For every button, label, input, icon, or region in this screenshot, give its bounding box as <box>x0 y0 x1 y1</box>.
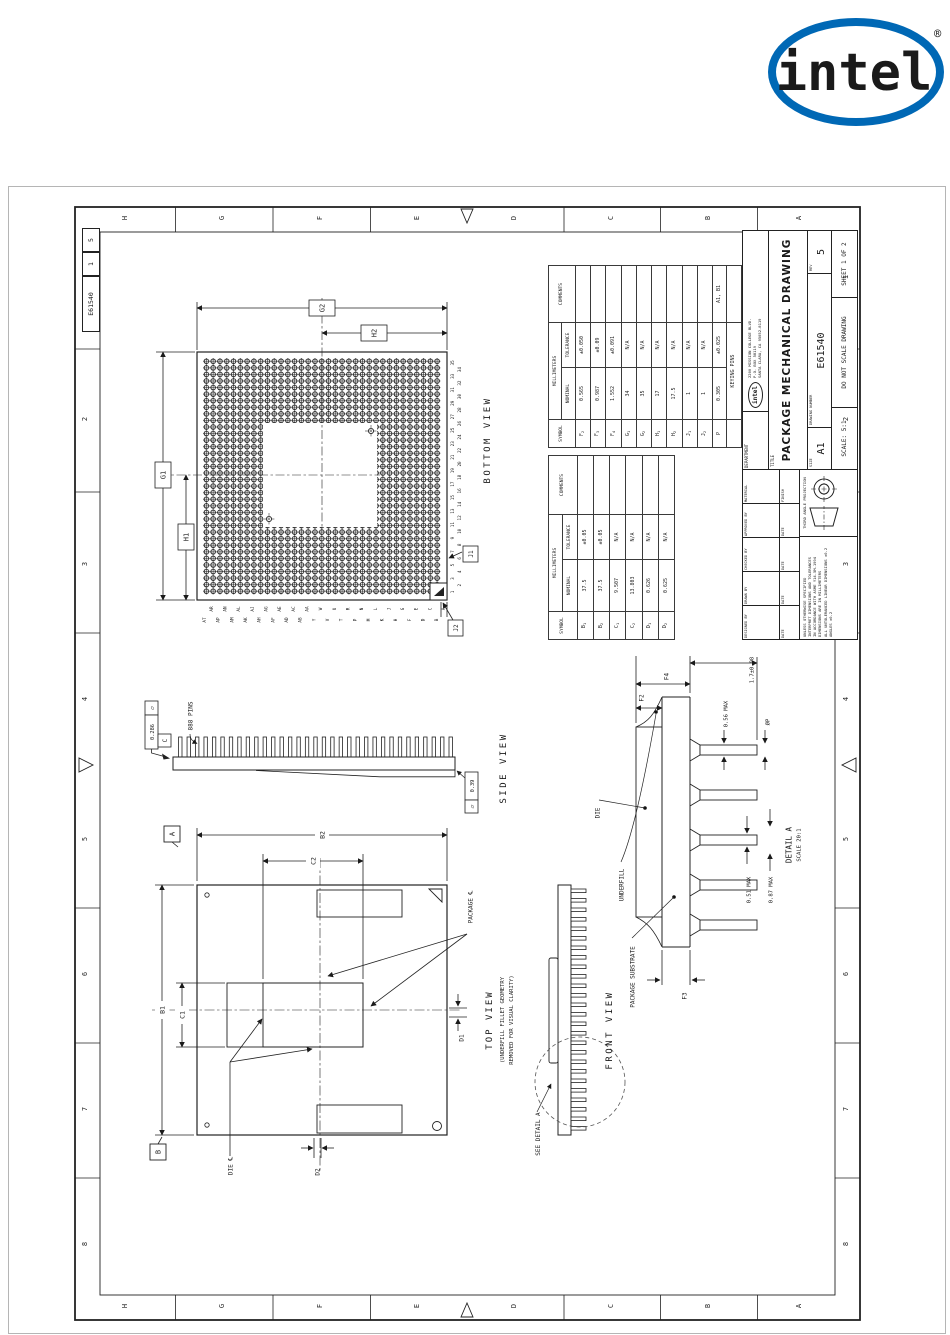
side-pin <box>381 737 384 757</box>
table-cell: ±0.09 <box>591 323 606 368</box>
pin-row-letter: J <box>386 608 392 611</box>
table-cell: N/A <box>652 323 667 368</box>
zone-number-left: 7 <box>81 1107 89 1111</box>
drawing-art: G2 H2 G1 H1 J1 J2 1234567891011121314151… <box>0 0 950 1335</box>
pin-column-number: 14 <box>457 501 463 507</box>
dim-b1: B1 <box>159 1006 167 1014</box>
side-pin <box>365 737 368 757</box>
side-pin <box>322 737 325 757</box>
pin-column-number: 9 <box>450 536 456 539</box>
pin-column-number: 7 <box>450 550 456 553</box>
table-cell: N/A <box>658 515 674 560</box>
table-symbol-cell: D1 <box>642 612 658 640</box>
die-label: DIE <box>595 807 602 818</box>
table-cell: ±0.025 <box>713 323 727 368</box>
pin-row-letter: AH <box>257 617 263 623</box>
drawing-number-label: DRAWING NUMBER <box>809 395 813 425</box>
side-pin <box>179 737 182 757</box>
pins-count-label: 888 PINS <box>188 701 195 730</box>
bottom-view-title: BOTTOM VIEW <box>483 396 493 483</box>
department-label: DEPARTMENT <box>743 411 768 469</box>
rev-label: REV <box>809 265 813 272</box>
detail-a-title: DETAIL A <box>785 826 794 863</box>
pin-column-number: 1 <box>450 590 456 593</box>
table-cell: N/A <box>642 515 658 560</box>
front-pin <box>571 956 586 960</box>
zone-number-left: 2 <box>81 417 89 421</box>
pin-row-letter: W <box>318 607 324 610</box>
table-cell: ±0.091 <box>606 323 621 368</box>
table-header: MILLIMETERS <box>549 515 563 612</box>
pin-row-letter: AK <box>243 617 249 623</box>
detail-pin-neck <box>690 914 700 936</box>
dim-b2: B2 <box>319 831 327 839</box>
pin-column-number: 11 <box>450 522 456 528</box>
pin-row-letter: AT <box>202 617 208 623</box>
dim-c2: C2 <box>310 857 318 865</box>
front-pin <box>571 1089 586 1093</box>
table-cell: A1, B1 <box>713 266 727 323</box>
flatness-icon: ▱ <box>468 804 476 808</box>
top-view-title: TOP VIEW <box>485 990 495 1049</box>
date-label: DATE <box>780 606 799 639</box>
table-symbol-cell: J2 <box>697 420 712 448</box>
front-pin <box>571 1051 586 1055</box>
front-pin <box>571 937 586 941</box>
table-header: SYMBOL <box>549 420 576 448</box>
pin-column-number: 23 <box>450 441 456 447</box>
pin-column-number: 29 <box>450 400 456 406</box>
dim-j1: J1 <box>468 550 475 558</box>
front-die <box>549 958 558 1063</box>
drawing-page: intel ® <box>0 0 950 1335</box>
detail-pin-shaft <box>700 745 757 755</box>
pin-column-number: 3 <box>450 577 456 580</box>
table-cell <box>577 456 593 515</box>
zone-letter-top: H <box>121 216 129 220</box>
front-pin <box>571 927 586 931</box>
detail-die <box>636 727 662 917</box>
title-block: DESIGNED BYDATE DRAWN BYDATE CHECKED BYD… <box>742 230 858 640</box>
side-pin <box>415 737 418 757</box>
side-pin <box>297 737 300 757</box>
pin-column-number: 31 <box>450 387 456 393</box>
side-pin <box>441 737 444 757</box>
side-pin <box>339 737 342 757</box>
pin-row-letter: AE <box>277 606 283 612</box>
side-fcf2: 0.39 ▱ <box>457 771 478 813</box>
table-cell: 0.626 <box>642 560 658 612</box>
table-cell <box>621 266 636 323</box>
zone-number-right: 7 <box>842 1107 850 1111</box>
datum-b: B <box>155 1150 163 1154</box>
table-row: H117N/A <box>652 266 667 448</box>
table-symbol-cell: C2 <box>626 612 642 640</box>
dimension-table-1: SYMBOLMILLIMETERSCOMMENTSNOMINALTOLERANC… <box>548 265 742 448</box>
dim-d2: D2 <box>315 1168 322 1176</box>
table-cell <box>652 266 667 323</box>
table-cell: 35 <box>636 368 651 420</box>
front-pin <box>571 889 586 893</box>
side-pin <box>187 737 190 757</box>
pin-row-letter: AC <box>291 606 297 612</box>
intel-mini-logo: intel <box>748 382 763 408</box>
zone-number-left: 8 <box>81 1242 89 1246</box>
table-cell: 0.565 <box>575 368 590 420</box>
pin-column-number: 5 <box>450 563 456 566</box>
pin-column-number: 15 <box>450 495 456 501</box>
underfill-fillet <box>636 697 662 947</box>
table-row: J21N/A <box>697 266 712 448</box>
table-row: G134N/A <box>621 266 636 448</box>
pin-row-letter: G <box>400 607 406 610</box>
pin-row-letter: AA <box>304 606 310 612</box>
pin-column-number: 26 <box>457 421 463 427</box>
pin-column-number: 34 <box>457 367 463 373</box>
table-row: G235N/A <box>636 266 651 448</box>
side-view-pins <box>179 737 453 757</box>
pin-row-letter: H <box>393 618 399 621</box>
side-pin <box>348 737 351 757</box>
side-pin <box>331 737 334 757</box>
dim-h1: H1 <box>183 533 191 541</box>
table-header: TOLERANCE <box>563 515 577 560</box>
detail-a-labels: DIE UNDERFILL PACKAGE SUBSTRATE 1.7±0.08… <box>595 657 803 1008</box>
dim-g2: G2 <box>319 304 327 312</box>
front-pin <box>571 899 586 903</box>
zone-letter-bottom: E <box>413 1304 421 1308</box>
pin-column-number: 20 <box>457 461 463 467</box>
pin-column-number: 10 <box>457 528 463 534</box>
pin-column-number: 8 <box>457 543 463 546</box>
table-header: SYMBOL <box>549 612 578 640</box>
table-symbol-cell: P <box>713 420 727 448</box>
microfilm-strip: E61540 1 5 <box>82 228 100 332</box>
table-cell <box>697 266 712 323</box>
date-label: DATE <box>780 572 799 605</box>
detail-pin-shaft <box>700 835 757 845</box>
zone-number-left: 5 <box>81 837 89 841</box>
date-label: DATE <box>780 504 799 537</box>
front-pin <box>571 1022 586 1026</box>
side-pin <box>288 737 291 757</box>
side-view-title: SIDE VIEW <box>499 732 509 803</box>
front-view: SEE DETAIL A FRONT VIEW <box>535 885 625 1156</box>
table-symbol-cell: D2 <box>658 612 674 640</box>
table-row: B137.5±0.05 <box>577 456 593 640</box>
dimension-table: SYMBOLMILLIMETERSCOMMENTSNOMINALTOLERANC… <box>548 265 742 448</box>
table-cell: KEYING PINS <box>727 323 742 420</box>
checked-by-label: CHECKED BY <box>743 538 780 571</box>
do-not-scale-note: DO NOT SCALE DRAWING <box>841 298 848 407</box>
detail-pin-neck <box>690 784 700 806</box>
table-cell <box>626 456 642 515</box>
side-pin <box>229 737 232 757</box>
pin-row-letter: K <box>380 618 386 621</box>
dim-pin-length: 1.7±0.08 <box>750 657 756 684</box>
detail-pin-shaft <box>700 920 757 930</box>
front-pin <box>571 1098 586 1102</box>
front-view-pins <box>571 889 586 1130</box>
finish-label: FINISH <box>780 470 799 503</box>
material-label: MATERIAL <box>743 470 780 503</box>
zone-number-left: 3 <box>81 562 89 566</box>
flatness-icon: ▱ <box>148 706 156 710</box>
front-pin <box>571 1032 586 1036</box>
side-pin <box>246 737 249 757</box>
zone-letter-top: B <box>704 216 712 220</box>
table-cell: ±0.050 <box>575 323 590 368</box>
table-row: D10.626N/A <box>642 456 658 640</box>
pin-row-letter: AB <box>298 617 304 623</box>
table-symbol-cell <box>727 420 742 448</box>
zone-number-right: 8 <box>842 1242 850 1246</box>
table-cell <box>667 266 682 323</box>
front-pin <box>571 1117 586 1121</box>
table-cell: 0.987 <box>591 368 606 420</box>
pin-column-number: 16 <box>457 488 463 494</box>
zone-letter-bottom: B <box>704 1304 712 1308</box>
side-view: ▱ 0.286 C 888 PINS 0.39 ▱ SIDE VIEW <box>145 701 509 813</box>
pin-column-number: 12 <box>457 515 463 521</box>
table-cell <box>593 456 609 515</box>
side-fcf1: ▱ 0.286 C <box>145 701 171 760</box>
table-row: C213.803N/A <box>626 456 642 640</box>
table-cell: 37.5 <box>577 560 593 612</box>
pin-row-letter: AN <box>222 606 228 612</box>
table-symbol-cell: G2 <box>636 420 651 448</box>
side-pin <box>314 737 317 757</box>
date-label: DATE <box>780 538 799 571</box>
front-pin <box>571 1060 586 1064</box>
substrate-label: PACKAGE SUBSTRATE <box>630 946 637 1008</box>
zone-number-right: 3 <box>842 562 850 566</box>
table-symbol-cell: F3 <box>591 420 606 448</box>
front-pin <box>571 1108 586 1112</box>
drawing-number: E61540 <box>816 274 827 427</box>
designed-by-label: DESIGNED BY <box>743 606 780 639</box>
front-pin <box>571 1041 586 1045</box>
side-pin <box>255 737 258 757</box>
strip-dwg-no: E61540 <box>82 276 100 332</box>
fcf1-value: 0.286 <box>150 724 156 740</box>
pin-column-number: 17 <box>450 481 456 487</box>
table-cell <box>727 266 742 323</box>
table-symbol-cell: F2 <box>575 420 590 448</box>
table-cell: 37.5 <box>593 560 609 612</box>
table-symbol-cell: J1 <box>682 420 697 448</box>
table-header: COMMENTS <box>549 456 578 515</box>
size-label: SIZE <box>809 458 813 467</box>
side-pin <box>280 737 283 757</box>
front-pin <box>571 984 586 988</box>
third-angle-projection-icon <box>807 474 841 532</box>
front-pin <box>571 975 586 979</box>
table-cell: N/A <box>621 323 636 368</box>
table-cell: N/A <box>610 515 626 560</box>
pin-column-number: 32 <box>457 380 463 386</box>
pin-row-letter: T <box>339 618 345 621</box>
side-pin <box>398 737 401 757</box>
dimension-table-2: SYMBOLMILLIMETERSCOMMENTSNOMINALTOLERANC… <box>548 455 675 640</box>
dim-h2: H2 <box>371 329 379 337</box>
zone-number-right: 4 <box>842 697 850 701</box>
table-cell: 13.803 <box>626 560 642 612</box>
dim-g1: G1 <box>160 471 168 479</box>
table-cell: 34 <box>621 368 636 420</box>
front-pin <box>571 918 586 922</box>
front-view-title: FRONT VIEW <box>605 990 615 1069</box>
table-symbol-cell: C1 <box>610 612 626 640</box>
zone-number-right: 5 <box>842 837 850 841</box>
detail-pin-neck <box>690 829 700 851</box>
address-line3: SANTA CLARA, CA 95052-8119 <box>757 319 762 378</box>
drawing-title: PACKAGE MECHANICAL DRAWING <box>781 231 793 469</box>
pin-column-number: 35 <box>450 360 456 366</box>
pin-column-number: 27 <box>450 414 456 420</box>
bottom-view: G2 H2 G1 H1 J1 J2 1234567891011121314151… <box>155 298 493 636</box>
dim-d1: D1 <box>459 1034 466 1042</box>
pin-row-letter: AP <box>216 617 222 623</box>
table-cell <box>591 266 606 323</box>
pin-row-letter: AF <box>270 617 276 623</box>
table-cell: 1 <box>697 368 712 420</box>
table-header: NOMINAL <box>562 368 575 420</box>
dim-pin-dia: ØP <box>765 718 772 725</box>
size-value: A1 <box>816 428 827 469</box>
table-cell: 1 <box>682 368 697 420</box>
front-pin <box>571 946 586 950</box>
front-pin <box>571 965 586 969</box>
zone-number-right: 1 <box>842 275 850 279</box>
zone-letter-top: E <box>413 216 421 220</box>
pin-row-letter: U <box>332 607 338 610</box>
side-pin <box>305 737 308 757</box>
table-row: F30.987±0.09 <box>591 266 606 448</box>
table-cell <box>682 266 697 323</box>
dim-c1: C1 <box>179 1011 187 1019</box>
pin-row-letter: B <box>434 618 440 621</box>
detail-leaders <box>599 714 674 938</box>
front-pin <box>571 1003 586 1007</box>
dim-f4: F4 <box>664 673 671 681</box>
side-pin <box>449 737 452 757</box>
pin-column-number: 28 <box>457 407 463 413</box>
approved-by-label: APPROVED BY <box>743 504 780 537</box>
pin-row-letter: AD <box>284 617 290 623</box>
sheet-number: SHEET 1 OF 2 <box>841 231 848 297</box>
table-cell <box>606 266 621 323</box>
detail-pin-neck <box>690 739 700 761</box>
table-row: F41.552±0.091 <box>606 266 621 448</box>
pin-row-letter: P <box>352 618 358 621</box>
zone-letter-bottom: G <box>218 1304 226 1308</box>
pin-column-number: 19 <box>450 468 456 474</box>
rev-value: 5 <box>816 231 827 273</box>
zone-letter-top: A <box>795 216 803 220</box>
zone-letter-bottom: A <box>795 1304 803 1308</box>
strip-rev: 5 <box>82 228 100 252</box>
table-cell: N/A <box>682 323 697 368</box>
table-symbol-cell: G1 <box>621 420 636 448</box>
pin-column-number: 13 <box>450 508 456 514</box>
side-pin <box>238 737 241 757</box>
pin-row-letter: F <box>407 618 413 621</box>
table-cell: ±0.05 <box>577 515 593 560</box>
detail-a-pins <box>690 739 757 936</box>
table-row: H217.5N/A <box>667 266 682 448</box>
table-cell: N/A <box>697 323 712 368</box>
side-pin <box>407 737 410 757</box>
pin-row-letter: R <box>345 607 351 610</box>
pin-column-number: 25 <box>450 427 456 433</box>
zone-letter-top: G <box>218 216 226 220</box>
pin-row-letter: AL <box>236 606 242 612</box>
pin-row-letter: V <box>325 618 331 621</box>
zone-number-right: 6 <box>842 972 850 976</box>
table-header: NOMINAL <box>563 560 577 612</box>
pin-row-letter: AR <box>209 606 215 612</box>
title-label: TITLE <box>770 455 775 467</box>
front-pin <box>571 994 586 998</box>
table-cell: ±0.05 <box>593 515 609 560</box>
pin-row-letter: M <box>366 618 372 621</box>
side-pin <box>221 737 224 757</box>
top-view-subtitle2: REMOVED FOR VISUAL CLARITY) <box>509 975 515 1064</box>
front-pin <box>571 1013 586 1017</box>
top-view-subtitle1: (UNDERFILL FILLET GEOMETRY <box>500 976 506 1063</box>
table-cell: N/A <box>636 323 651 368</box>
front-pin <box>571 908 586 912</box>
zone-letter-bottom: F <box>316 1304 324 1308</box>
pin-row-letter: Y <box>311 618 317 621</box>
pin-row-letter: AM <box>229 617 235 623</box>
top-view: B2 C2 B1 C1 D1 D2 A B PACKAGE ℄ DIE ℄ TO… <box>150 826 515 1176</box>
zone-letter-bottom: H <box>121 1304 129 1308</box>
detail-a-scale: SCALE 20:1 <box>797 828 803 861</box>
side-pin <box>356 737 359 757</box>
pin-column-number: 2 <box>457 584 463 587</box>
pin-column-number: 18 <box>457 474 463 480</box>
dim-f2: F2 <box>639 694 646 702</box>
table-cell: 0.625 <box>658 560 674 612</box>
side-die-wedge <box>256 771 455 777</box>
zone-number-right: 2 <box>842 417 850 421</box>
table-cell <box>610 456 626 515</box>
pin-row-letter: C <box>427 607 433 610</box>
front-pin <box>571 1070 586 1074</box>
side-pin <box>390 737 393 757</box>
table-symbol-cell: F4 <box>606 420 621 448</box>
zone-letter-bottom: D <box>510 1304 518 1308</box>
table-symbol-cell: B2 <box>593 612 609 640</box>
front-pin <box>571 1079 586 1083</box>
table-cell <box>575 266 590 323</box>
side-pin <box>432 737 435 757</box>
table-cell <box>642 456 658 515</box>
table-cell: N/A <box>626 515 642 560</box>
zone-letter-top: D <box>510 216 518 220</box>
pin-column-number: 30 <box>457 394 463 400</box>
table-cell: N/A <box>667 323 682 368</box>
table-row: D20.625N/A <box>658 456 674 640</box>
table-cell: 0.305 <box>713 368 727 420</box>
die-centerline-label: DIE ℄ <box>228 1157 235 1175</box>
fcf1-datum: C <box>162 738 169 742</box>
table-cell: 17 <box>652 368 667 420</box>
table-header: TOLERANCE <box>562 323 575 368</box>
table-row: F20.565±0.050 <box>575 266 590 448</box>
